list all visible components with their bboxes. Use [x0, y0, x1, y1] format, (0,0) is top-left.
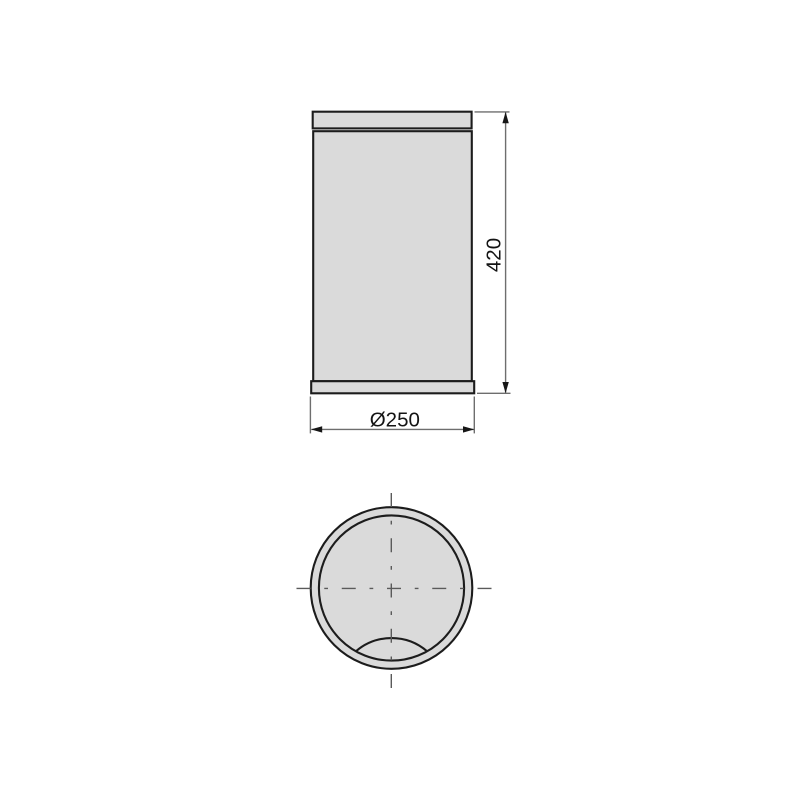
svg-text:420: 420: [483, 238, 506, 272]
svg-text:Ø250: Ø250: [370, 409, 420, 432]
